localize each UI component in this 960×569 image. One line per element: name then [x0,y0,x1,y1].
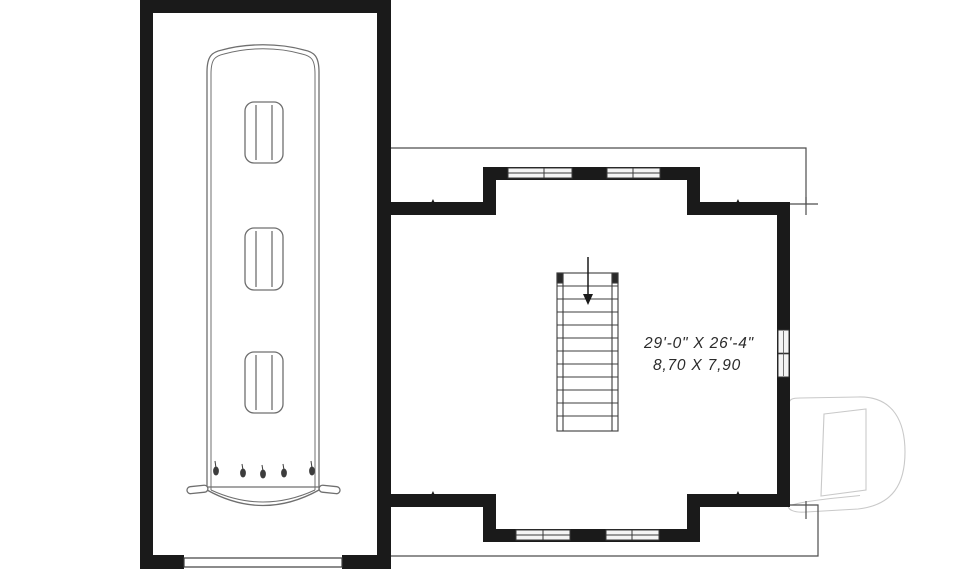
stair-direction-arrow-icon [583,257,593,305]
garage-wall-left [140,0,153,569]
boat-top-view-icon [187,45,341,506]
boat-stern-inner-curve [211,490,315,502]
garage-wall-bottom-left-segment [140,555,184,569]
d-logo-watermark-icon [788,397,905,512]
garage-door [184,555,342,569]
wall-tick-marks [426,199,742,505]
boat-hatches [245,102,283,413]
boat-cleat-right [319,485,341,494]
boat-hatch-1 [245,102,283,163]
bonus-room: 29'-0" X 26'-4" 8,70 X 7,90 [391,148,818,556]
window-unit [543,530,570,540]
garage-wall-top [140,0,391,13]
window-unit [633,168,660,178]
wall-top-left [391,202,496,215]
drop-icon [282,464,287,477]
garage-walls [140,0,391,569]
boat-cleat-left [187,485,209,494]
wall-bottom-left [391,494,496,507]
logo-inner-door-shape [821,409,866,496]
window-unit [508,168,544,178]
stair-newel-cap [557,273,563,283]
window-unit [606,530,632,540]
window-unit [607,168,633,178]
boat-hatch-2 [245,228,283,290]
boat-cleats [187,485,341,494]
dimension-label-metric: 8,70 X 7,90 [653,357,741,374]
floor-plan-canvas: 29'-0" X 26'-4" 8,70 X 7,90 [0,0,960,569]
window-unit [544,168,572,178]
boat-seat-drop-icons [214,461,315,478]
stair-treads [557,286,618,416]
garage-room [140,0,391,569]
garage-door-panel [184,558,342,567]
drop-icon [214,461,219,475]
east-window [778,330,789,377]
floor-plan-svg: 29'-0" X 26'-4" 8,70 X 7,90 [0,0,960,569]
drop-icon [310,461,315,475]
stair-newel-cap [612,273,618,283]
boat-stern-outer-curve [207,490,319,506]
bonus-room-walls [391,167,790,542]
window-unit [516,530,543,540]
drop-icon [241,464,246,477]
boat-hull-inner [211,49,315,490]
garage-wall-right [377,0,391,569]
drop-icon [261,465,266,478]
dimension-label-imperial: 29'-0" X 26'-4" [643,335,755,352]
boat-hull-outer [207,45,319,490]
window-unit [632,530,659,540]
boat-hatch-3 [245,352,283,413]
dimension-labels: 29'-0" X 26'-4" 8,70 X 7,90 [643,335,755,374]
garage-wall-bottom-right-segment [342,555,391,569]
